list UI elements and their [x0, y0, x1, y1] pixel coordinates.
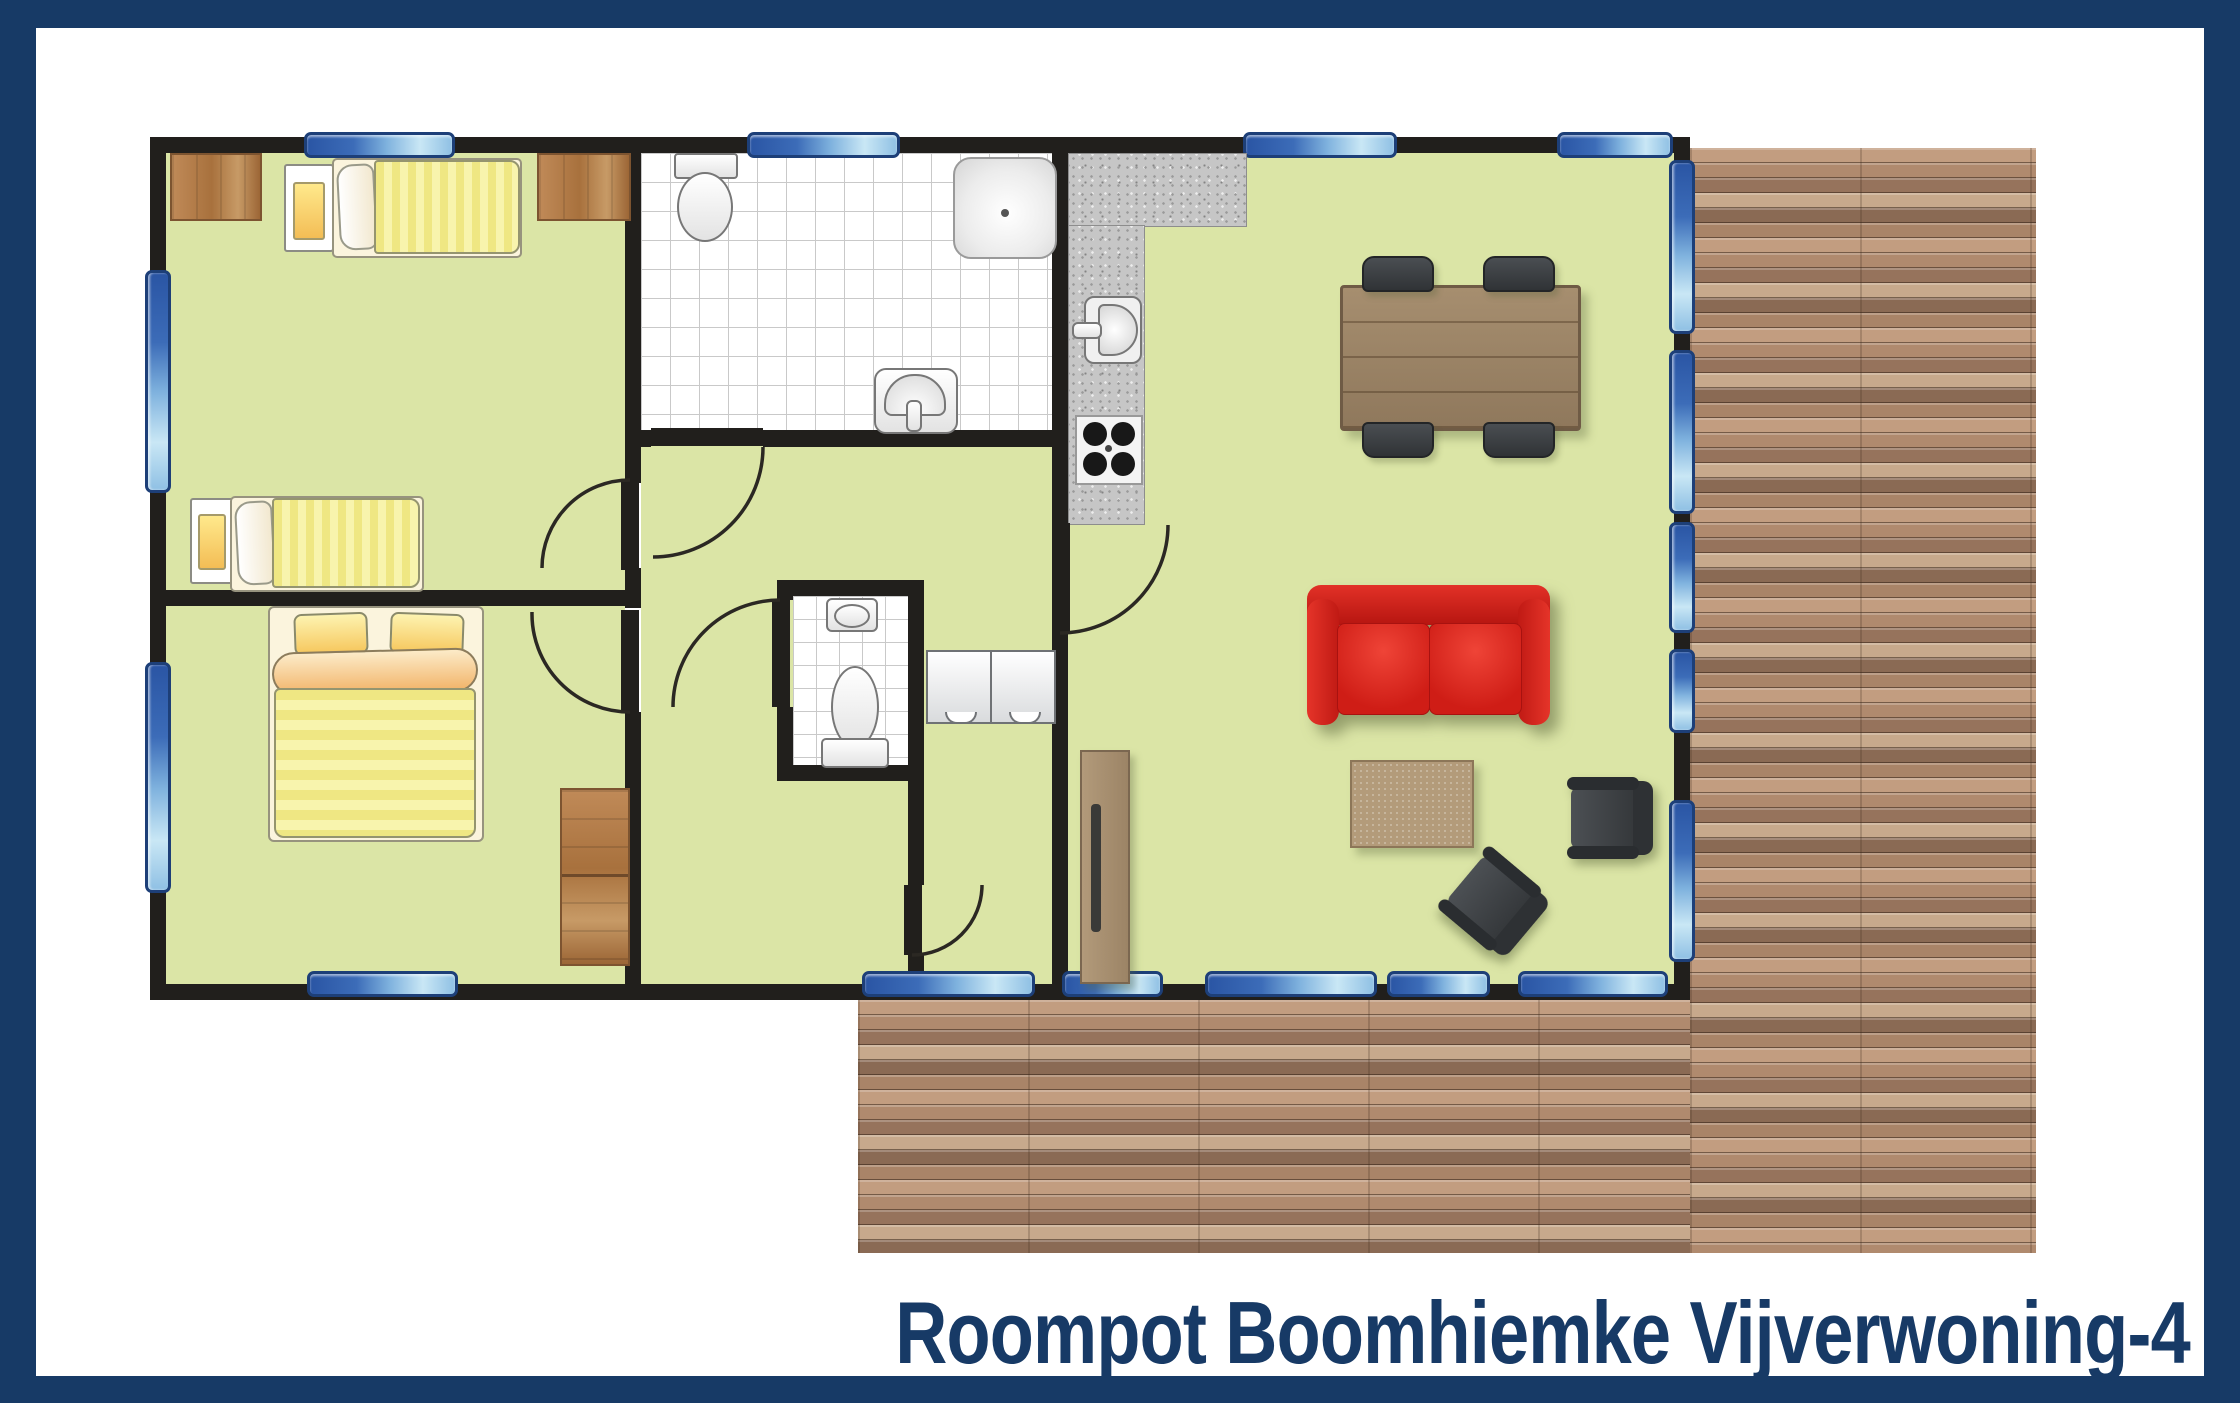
- sofa-arm: [1518, 599, 1550, 725]
- stove-burner: [1083, 452, 1107, 476]
- nightstand: [284, 164, 334, 252]
- duvet: [272, 498, 420, 588]
- sofa-back: [1307, 585, 1550, 625]
- single-bed: [284, 158, 518, 254]
- wall-bedroom-divider: [150, 590, 641, 606]
- wc-toilet-bowl: [831, 666, 879, 748]
- sofa-cushion: [1337, 623, 1430, 715]
- duvet: [274, 688, 476, 838]
- kitchen-faucet: [1072, 322, 1102, 339]
- window: [1387, 971, 1490, 997]
- washbasin-faucet: [906, 400, 922, 432]
- corner-closet: [170, 153, 262, 221]
- wall-wc-left-b: [777, 707, 793, 781]
- shower: [953, 157, 1057, 259]
- door-leaf: [621, 610, 639, 712]
- terrace-right: [1690, 148, 2036, 1253]
- door-leaf: [1052, 523, 1070, 633]
- wall-storage-a: [908, 781, 924, 885]
- wall-wc-top: [777, 580, 924, 596]
- kitchen-sink: [1084, 296, 1142, 364]
- sofa-arm: [1307, 599, 1339, 725]
- window: [304, 132, 455, 158]
- window: [1669, 350, 1695, 514]
- sofa: [1307, 585, 1550, 725]
- wc-washbasin-bowl: [834, 604, 870, 628]
- window: [307, 971, 458, 997]
- window: [1669, 160, 1695, 334]
- door-leaf: [621, 480, 639, 570]
- double-bed: [268, 606, 480, 838]
- armchair-arm: [1567, 846, 1639, 859]
- plan-title: Roompot Boomhiemke Vijverwoning-4: [895, 1282, 2190, 1384]
- window: [1669, 800, 1695, 962]
- corner-closet: [537, 153, 631, 221]
- pillow: [234, 500, 276, 586]
- wardrobe: [560, 788, 630, 966]
- dining-table: [1340, 285, 1581, 431]
- window: [1518, 971, 1668, 997]
- dining-chair: [1483, 422, 1555, 458]
- stove-knob: [1105, 445, 1112, 452]
- stove: [1075, 415, 1143, 485]
- armchair-seat: [1571, 787, 1637, 849]
- sofa-cushion: [1429, 623, 1522, 715]
- door-leaf: [651, 428, 763, 446]
- terrace-bottom: [858, 1000, 1690, 1253]
- armchair-arm: [1567, 777, 1639, 790]
- wc-washbasin: [826, 598, 878, 632]
- cabinet: [926, 650, 992, 724]
- cabinet-handle: [945, 712, 977, 724]
- dining-chair: [1483, 256, 1555, 292]
- window: [1243, 132, 1397, 158]
- sideboard-handle: [1091, 804, 1101, 932]
- washbasin: [874, 368, 958, 434]
- window: [1669, 649, 1695, 733]
- wall-bedrooms-hall-b: [625, 568, 641, 608]
- dining-chair: [1362, 422, 1434, 458]
- floorplan-page: Roompot Boomhiemke Vijverwoning-4: [0, 0, 2240, 1403]
- window: [862, 971, 1035, 997]
- door-leaf: [772, 600, 790, 707]
- stove-burner: [1111, 422, 1135, 446]
- window: [1205, 971, 1377, 997]
- window: [145, 662, 171, 893]
- stove-burner: [1083, 422, 1107, 446]
- duvet: [374, 160, 520, 254]
- window: [145, 270, 171, 493]
- nightstand: [190, 498, 234, 584]
- stove-burner: [1111, 452, 1135, 476]
- wall-wc-right: [908, 596, 924, 765]
- window: [1557, 132, 1673, 158]
- wc-toilet-base: [821, 738, 889, 768]
- armchair: [1567, 777, 1653, 859]
- single-bed: [190, 496, 420, 588]
- armchair-back: [1633, 781, 1653, 855]
- wall-bath-bottom-a: [641, 430, 651, 447]
- pillow: [336, 163, 378, 251]
- window: [747, 132, 900, 158]
- sideboard: [1080, 750, 1130, 984]
- dining-chair: [1362, 256, 1434, 292]
- kitchen-sink-basin: [1098, 304, 1138, 356]
- wall-wc-left-a: [777, 580, 793, 600]
- kitchen-counter-top: [1068, 153, 1247, 227]
- cabinet: [990, 650, 1056, 724]
- toilet-bowl: [677, 172, 733, 242]
- door-leaf: [904, 885, 922, 955]
- cabinet-handle: [1009, 712, 1041, 724]
- window: [1669, 522, 1695, 633]
- coffee-table: [1350, 760, 1474, 848]
